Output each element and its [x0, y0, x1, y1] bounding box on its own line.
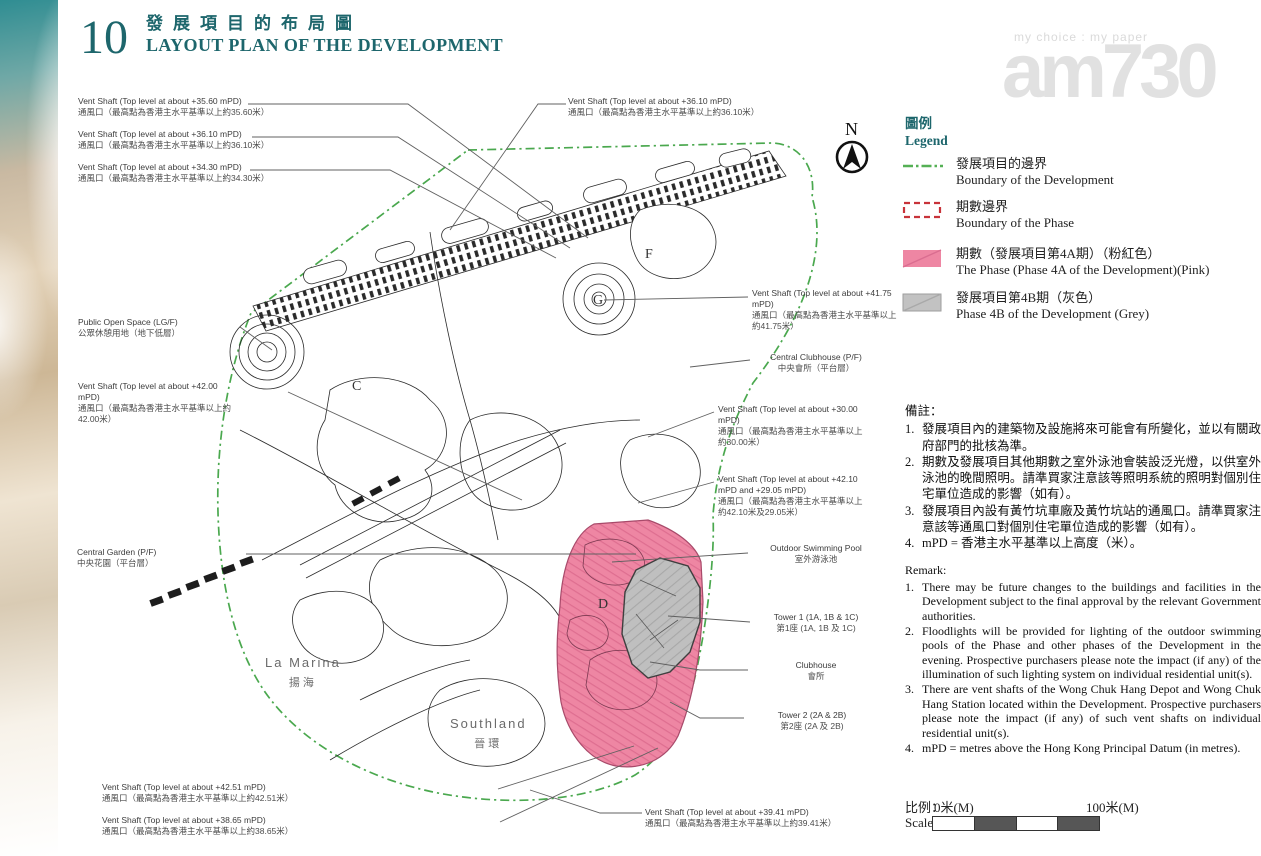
remarks-en: Remark: 1. There may be future changes t… [905, 563, 1261, 755]
scale-start-value: 0米(M) [934, 797, 974, 816]
callout-en: Tower 1 (1A, 1B & 1C) [752, 612, 880, 623]
remarks-en-title: Remark: [905, 563, 1261, 578]
legend-item-text: 發展項目第4B期（灰色） Phase 4B of the Development… [956, 290, 1149, 323]
boundary-development-swatch [902, 156, 944, 189]
callout-zh: 通風口（最高點為香港主水平基準以上約41.75米） [752, 310, 900, 332]
callout-vent-shaft-34-30: Vent Shaft (Top level at about +34.30 mP… [78, 162, 269, 184]
phase-4b-swatch [902, 290, 944, 323]
place-name-zh: 揚海 [265, 674, 341, 690]
scale-segment [1058, 817, 1099, 830]
callout-public-open-space: Public Open Space (LG/F) 公眾休憩用地（地下低層） [78, 317, 180, 339]
callout-vent-shaft-42-10-29-05: Vent Shaft (Top level at about +42.10 mP… [718, 474, 866, 518]
legend-zh: 期數邊界 [956, 199, 1074, 215]
legend-title: 圖例 Legend [905, 116, 948, 150]
callout-outdoor-swimming-pool: Outdoor Swimming Pool 室外游泳池 [752, 543, 880, 565]
scale-segment [1017, 817, 1059, 830]
callout-tower-1: Tower 1 (1A, 1B & 1C) 第1座 (1A, 1B 及 1C) [752, 612, 880, 634]
legend-item-phase-4a: 期數（發展項目第4A期）（粉紅色） The Phase (Phase 4A of… [902, 246, 1209, 279]
legend-zh: 發展項目的邊界 [956, 156, 1114, 172]
remark-text: 期數及發展項目其他期數之室外泳池會裝設泛光燈，以供室外泳池的晚間照明。請準買家注… [922, 454, 1261, 503]
remarks-zh-title: 備註： [905, 403, 1261, 419]
remark-num: 3. [905, 503, 922, 536]
callout-en: Vent Shaft (Top level at about +35.60 mP… [78, 96, 269, 107]
marker-d: D [598, 597, 608, 612]
legend-item-text: 發展項目的邊界 Boundary of the Development [956, 156, 1114, 189]
remark-num: 1. [905, 421, 922, 454]
callout-en: Vent Shaft (Top level at about +42.00 mP… [78, 381, 238, 403]
remark-num: 4. [905, 741, 922, 756]
callout-zh: 第2座 (2A 及 2B) [748, 721, 876, 732]
legend-item-phase-4b: 發展項目第4B期（灰色） Phase 4B of the Development… [902, 290, 1149, 323]
callout-en: Public Open Space (LG/F) [78, 317, 180, 328]
remark-text: There are vent shafts of the Wong Chuk H… [922, 682, 1261, 741]
callout-zh: 通風口（最高點為香港主水平基準以上約35.60米） [78, 107, 269, 118]
callout-vent-shaft-36-10-left: Vent Shaft (Top level at about +36.10 mP… [78, 129, 269, 151]
remark-en-item: 4. mPD = metres above the Hong Kong Prin… [905, 741, 1261, 756]
callout-zh: 公眾休憩用地（地下低層） [78, 328, 180, 339]
remark-en-item: 1. There may be future changes to the bu… [905, 580, 1261, 624]
legend-item-boundary-phase: 期數邊界 Boundary of the Phase [902, 199, 1074, 232]
callout-vent-shaft-42-51: Vent Shaft (Top level at about +42.51 mP… [102, 782, 293, 804]
callout-en: Vent Shaft (Top level at about +36.10 mP… [78, 129, 269, 140]
brochure-page: 10 發展項目的布局圖 LAYOUT PLAN OF THE DEVELOPME… [0, 0, 1261, 856]
callout-en: Outdoor Swimming Pool [752, 543, 880, 554]
callout-zh: 會所 [752, 671, 880, 682]
legend-title-zh: 圖例 [905, 116, 948, 133]
north-label: N [845, 119, 858, 139]
callout-clubhouse: Clubhouse 會所 [752, 660, 880, 682]
callout-zh: 通風口（最高點為香港主水平基準以上約34.30米） [78, 173, 269, 184]
scale-segment [975, 817, 1017, 830]
callout-central-clubhouse: Central Clubhouse (P/F) 中央會所（平台層） [752, 352, 880, 374]
remark-num: 3. [905, 682, 922, 741]
remark-zh-item: 4. mPD = 香港主水平基準以上高度（米）。 [905, 535, 1261, 551]
callout-zh: 通風口（最高點為香港主水平基準以上約38.65米） [102, 826, 293, 837]
callout-en: Clubhouse [752, 660, 880, 671]
place-name-en: Southland [450, 716, 527, 731]
callout-en: Vent Shaft (Top level at about +39.41 mP… [645, 807, 836, 818]
callout-central-garden: Central Garden (P/F) 中央花園（平台層） [77, 547, 156, 569]
remark-num: 1. [905, 580, 922, 624]
remark-zh-item: 2. 期數及發展項目其他期數之室外泳池會裝設泛光燈，以供室外泳池的晚間照明。請準… [905, 454, 1261, 503]
remark-text: 發展項目內設有黃竹坑車廠及黃竹坑站的通風口。請準買家注意該等通風口對個別住宅單位… [922, 503, 1261, 536]
callout-zh: 室外游泳池 [752, 554, 880, 565]
remarks-zh: 備註： 1. 發展項目內的建築物及設施將來可能會有所變化，並以有關政府部門的批核… [905, 403, 1261, 551]
callout-zh: 通風口（最高點為香港主水平基準以上約42.51米） [102, 793, 293, 804]
legend-en: Boundary of the Phase [956, 215, 1074, 231]
callout-en: Central Garden (P/F) [77, 547, 156, 558]
callout-vent-shaft-42-00: Vent Shaft (Top level at about +42.00 mP… [78, 381, 238, 425]
marker-c: C [352, 379, 361, 394]
remark-num: 2. [905, 624, 922, 683]
callout-vent-shaft-39-41: Vent Shaft (Top level at about +39.41 mP… [645, 807, 836, 829]
legend-item-text: 期數邊界 Boundary of the Phase [956, 199, 1074, 232]
marker-f: F [645, 247, 653, 262]
callout-tower-2: Tower 2 (2A & 2B) 第2座 (2A 及 2B) [748, 710, 876, 732]
legend-zh: 發展項目第4B期（灰色） [956, 290, 1149, 306]
remark-zh-item: 3. 發展項目內設有黃竹坑車廠及黃竹坑站的通風口。請準買家注意該等通風口對個別住… [905, 503, 1261, 536]
callout-zh: 通風口（最高點為香港主水平基準以上約39.41米） [645, 818, 836, 829]
legend-zh: 期數（發展項目第4A期）（粉紅色） [956, 246, 1209, 262]
callout-zh: 第1座 (1A, 1B 及 1C) [752, 623, 880, 634]
callout-zh: 中央花園（平台層） [77, 558, 156, 569]
legend-en: The Phase (Phase 4A of the Development)(… [956, 262, 1209, 278]
remark-text: mPD = 香港主水平基準以上高度（米）。 [922, 535, 1261, 551]
callout-zh: 通風口（最高點為香港主水平基準以上約42.00米） [78, 403, 238, 425]
remark-text: There may be future changes to the build… [922, 580, 1261, 624]
callout-zh: 通風口（最高點為香港主水平基準以上約36.10米） [78, 140, 269, 151]
remark-en-item: 3. There are vent shafts of the Wong Chu… [905, 682, 1261, 741]
scale-segment [933, 817, 975, 830]
legend-en: Phase 4B of the Development (Grey) [956, 306, 1149, 322]
scale-bar [932, 816, 1100, 831]
boundary-phase-swatch [902, 199, 944, 232]
remark-text: Floodlights will be provided for lightin… [922, 624, 1261, 683]
remark-text: 發展項目內的建築物及設施將來可能會有所變化，並以有關政府部門的批核為準。 [922, 421, 1261, 454]
callout-vent-shaft-30-00: Vent Shaft (Top level at about +30.00 mP… [718, 404, 866, 448]
remark-num: 4. [905, 535, 922, 551]
legend-item-boundary-development: 發展項目的邊界 Boundary of the Development [902, 156, 1114, 189]
north-arrow: N [837, 119, 867, 172]
callout-en: Vent Shaft (Top level at about +36.10 mP… [568, 96, 759, 107]
marker-g: G [593, 293, 603, 308]
callout-zh: 通風口（最高點為香港主水平基準以上約42.10米及29.05米） [718, 496, 866, 518]
place-name-zh: 晉環 [450, 735, 527, 751]
legend-item-text: 期數（發展項目第4A期）（粉紅色） The Phase (Phase 4A of… [956, 246, 1209, 279]
callout-en: Vent Shaft (Top level at about +41.75 mP… [752, 288, 900, 310]
remark-zh-item: 1. 發展項目內的建築物及設施將來可能會有所變化，並以有關政府部門的批核為準。 [905, 421, 1261, 454]
place-name-en: La Marina [265, 655, 341, 670]
remark-en-item: 2. Floodlights will be provided for ligh… [905, 624, 1261, 683]
callout-zh: 中央會所（平台層） [752, 363, 880, 374]
remark-num: 2. [905, 454, 922, 503]
callout-zh: 通風口（最高點為香港主水平基準以上約36.10米） [568, 107, 759, 118]
legend-title-en: Legend [905, 133, 948, 150]
phase-4a-swatch [902, 246, 944, 279]
callout-en: Vent Shaft (Top level at about +42.10 mP… [718, 474, 866, 496]
callout-en: Central Clubhouse (P/F) [752, 352, 880, 363]
callout-vent-shaft-36-10-top: Vent Shaft (Top level at about +36.10 mP… [568, 96, 759, 118]
place-la-marina: La Marina 揚海 [265, 655, 341, 690]
callout-vent-shaft-41-75: Vent Shaft (Top level at about +41.75 mP… [752, 288, 900, 332]
callout-en: Vent Shaft (Top level at about +42.51 mP… [102, 782, 293, 793]
scale-end-value: 100米(M) [1086, 797, 1139, 816]
place-southland: Southland 晉環 [450, 716, 527, 751]
callout-en: Vent Shaft (Top level at about +34.30 mP… [78, 162, 269, 173]
callout-en: Vent Shaft (Top level at about +30.00 mP… [718, 404, 866, 426]
callout-en: Vent Shaft (Top level at about +38.65 mP… [102, 815, 293, 826]
callout-vent-shaft-35-60: Vent Shaft (Top level at about +35.60 mP… [78, 96, 269, 118]
callout-en: Tower 2 (2A & 2B) [748, 710, 876, 721]
legend-en: Boundary of the Development [956, 172, 1114, 188]
callout-zh: 通風口（最高點為香港主水平基準以上約30.00米） [718, 426, 866, 448]
callout-vent-shaft-38-65: Vent Shaft (Top level at about +38.65 mP… [102, 815, 293, 837]
remark-text: mPD = metres above the Hong Kong Princip… [922, 741, 1261, 756]
